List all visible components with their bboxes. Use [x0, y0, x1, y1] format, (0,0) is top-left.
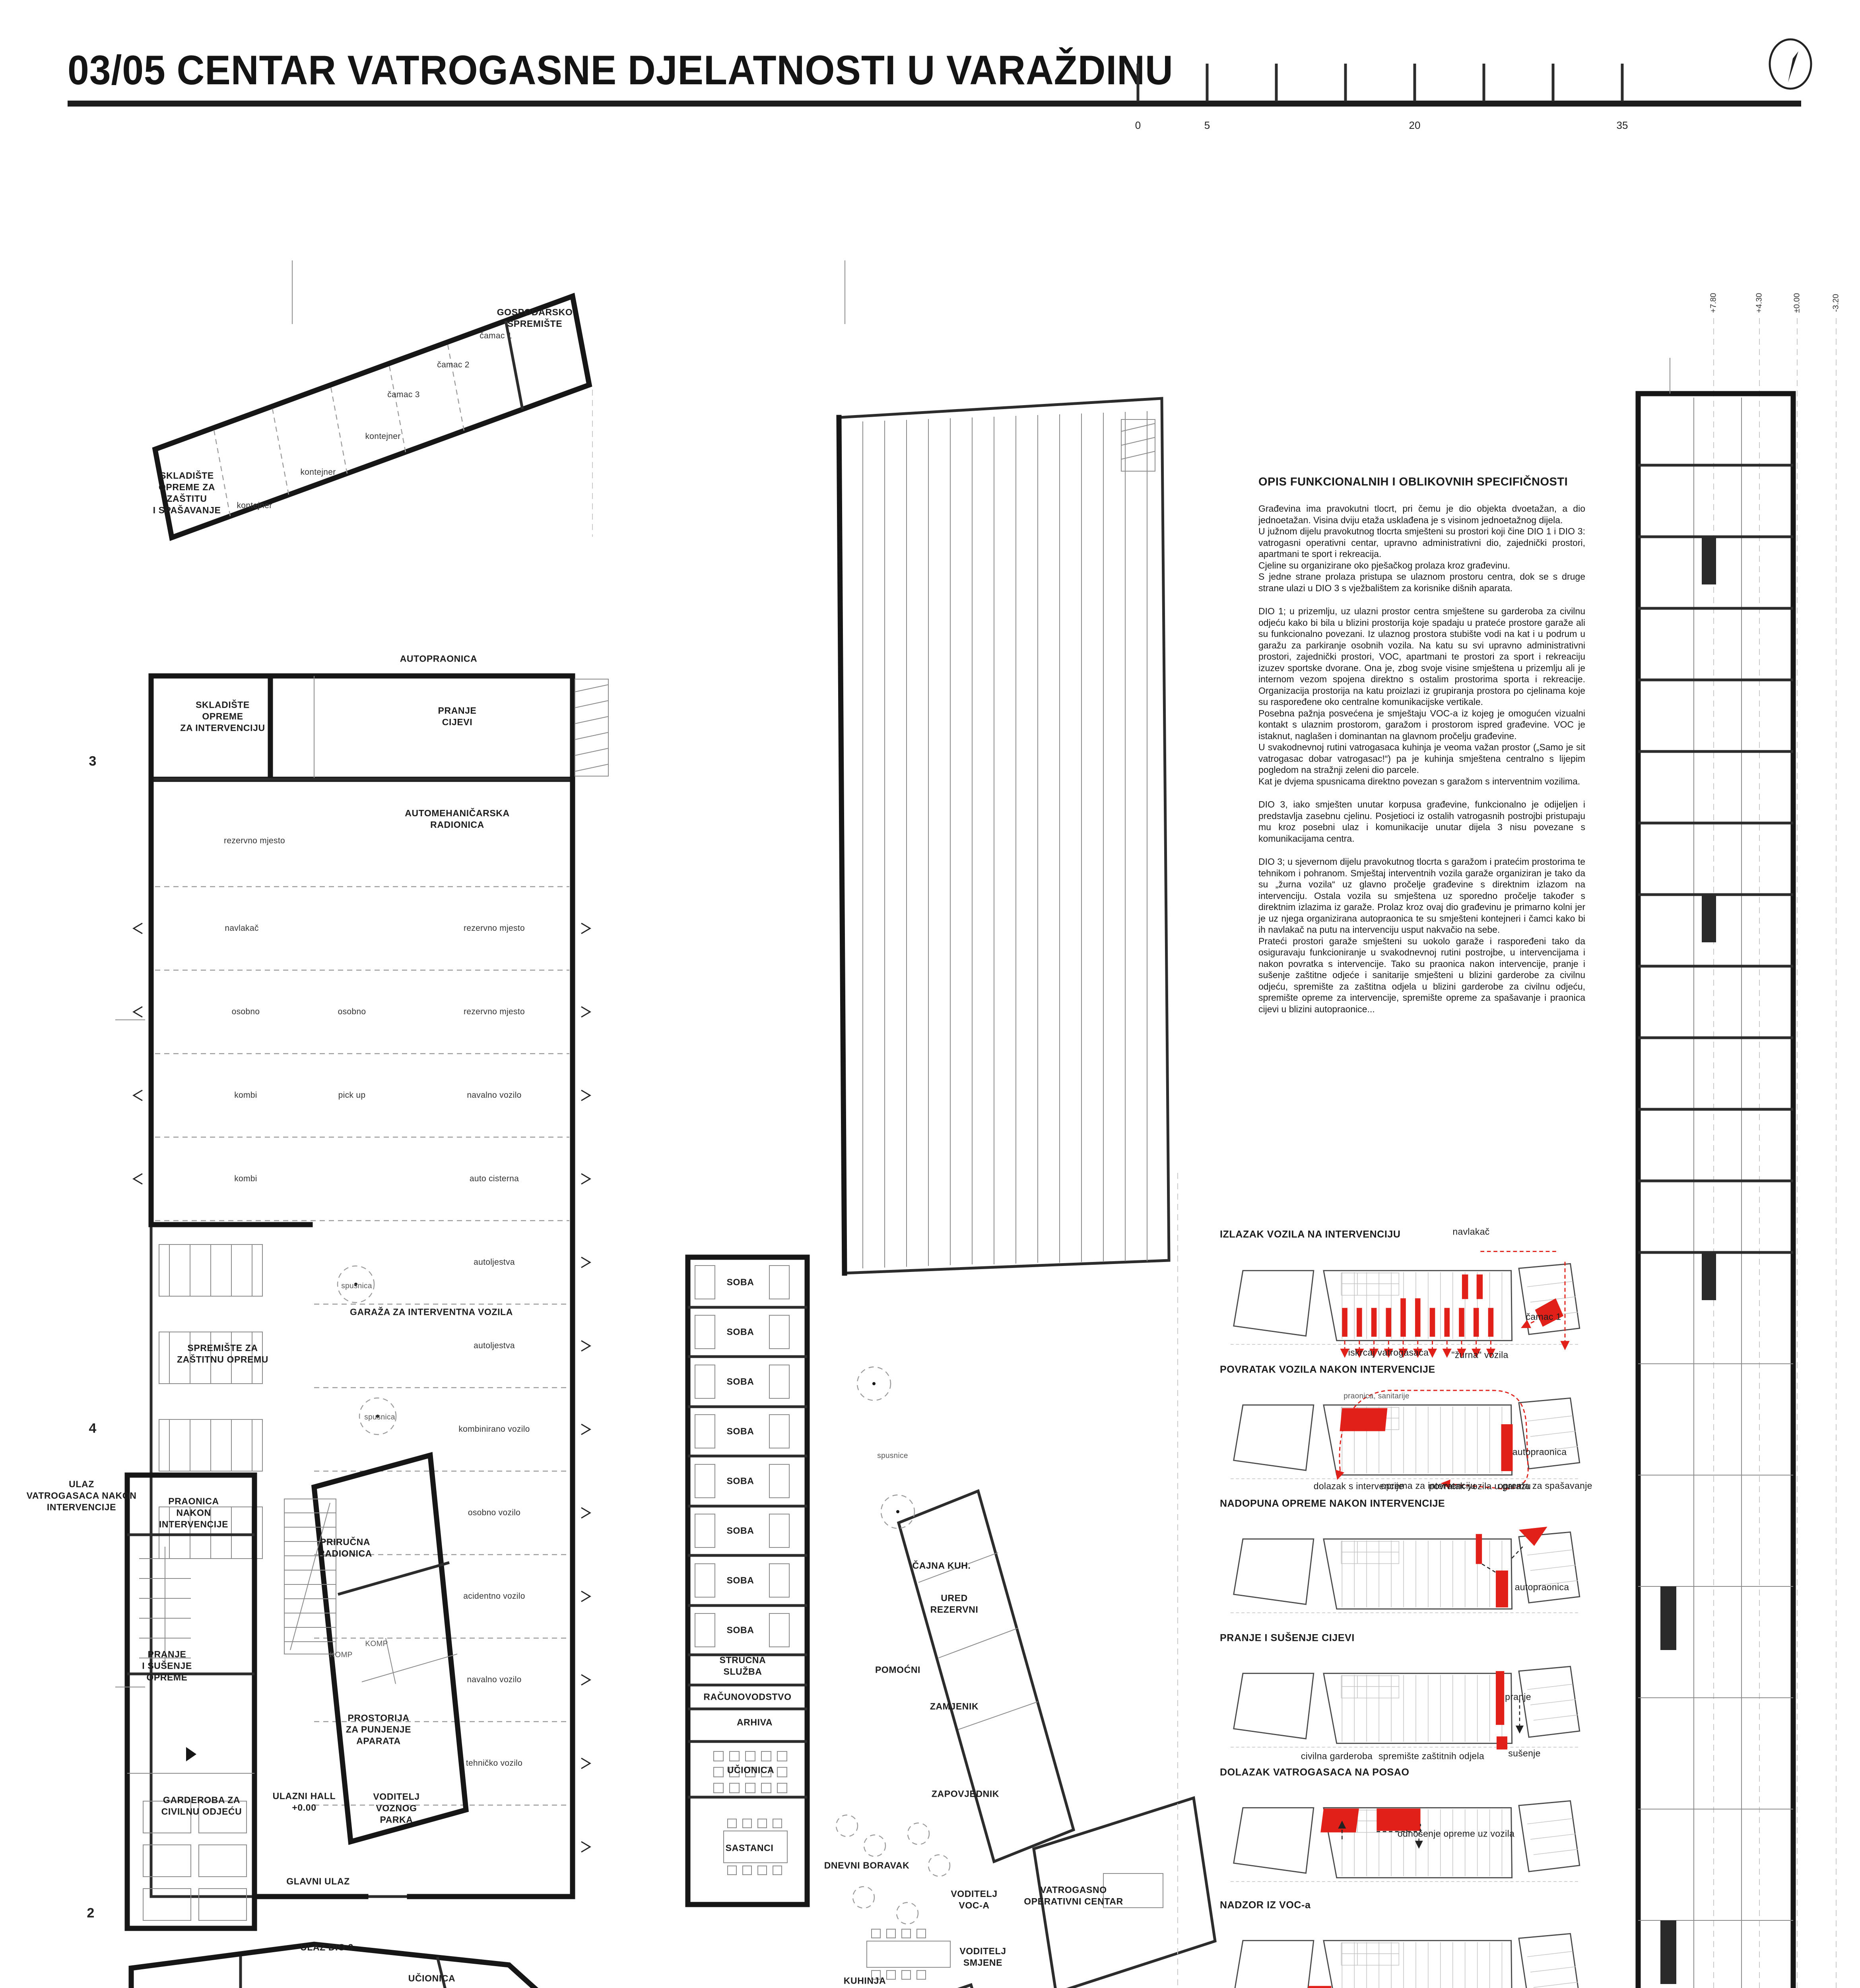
elevation-mark: ±0.00	[1793, 293, 1802, 313]
scheme-izlazak-diagram	[1217, 1244, 1590, 1360]
scale-label: 0	[1135, 119, 1141, 132]
description-paragraph: DIO 3; u sjevernom dijelu pravokutnog tl…	[1258, 856, 1585, 1015]
description-paragraphs: Građevina ima pravokutni tlocrt, pri čem…	[1258, 503, 1585, 1015]
scheme-title-nadzor: NADZOR IZ VOC-a	[1220, 1900, 1311, 1911]
scale-bar	[1137, 52, 1638, 107]
scheme-title-povratak: POVRATAK VOZILA NAKON INTERVENCIJE	[1220, 1364, 1435, 1376]
scale-label: 20	[1409, 119, 1421, 132]
elevation-mark: +7.80	[1709, 293, 1718, 313]
presentation-board: 03/05 CENTAR VATROGASNE DJELATNOSTI U VA…	[0, 0, 1860, 1988]
scheme-title-izlazak: IZLAZAK VOZILA NA INTERVENCIJU	[1220, 1229, 1401, 1241]
scheme-nadzor-diagram	[1217, 1914, 1590, 1988]
description-paragraph: DIO 3, iako smješten unutar korpusa građ…	[1258, 799, 1585, 844]
scheme-title-dolazak-posao: DOLAZAK VATROGASACA NA POSAO	[1220, 1767, 1410, 1778]
elevation-mark: +4.30	[1755, 293, 1764, 313]
scheme-pranje-diagram	[1217, 1647, 1590, 1763]
scheme-dolazak-posao-diagram	[1217, 1782, 1590, 1897]
scheme-title-nadopuna: NADOPUNA OPREME NAKON INTERVENCIJE	[1220, 1498, 1445, 1510]
description-heading: OPIS FUNKCIONALNIH I OBLIKOVNIH SPECIFIČ…	[1258, 476, 1585, 489]
scheme-povratak-diagram	[1217, 1379, 1590, 1494]
description-paragraph: Građevina ima pravokutni tlocrt, pri čem…	[1258, 503, 1585, 594]
scheme-nadopuna-diagram	[1217, 1513, 1590, 1628]
upper-floor-plan-drawing	[676, 258, 1225, 1988]
scale-label: 5	[1204, 119, 1210, 132]
schemes-label: navlakač	[1452, 1226, 1489, 1238]
ground-floor-plan-drawing	[60, 258, 624, 1988]
section-drawing	[1622, 258, 1853, 1988]
elevation-mark: -3.20	[1832, 294, 1841, 312]
description-paragraph: DIO 1; u prizemlju, uz ulazni prostor ce…	[1258, 606, 1585, 787]
page-title: 03/05 CENTAR VATROGASNE DJELATNOSTI U VA…	[68, 47, 1173, 94]
description-block: OPIS FUNKCIONALNIH I OBLIKOVNIH SPECIFIČ…	[1258, 476, 1585, 1027]
scheme-title-pranje: PRANJE I SUŠENJE CIJEVI	[1220, 1633, 1355, 1644]
north-compass-icon	[1763, 38, 1819, 93]
scale-label: 35	[1617, 119, 1628, 132]
